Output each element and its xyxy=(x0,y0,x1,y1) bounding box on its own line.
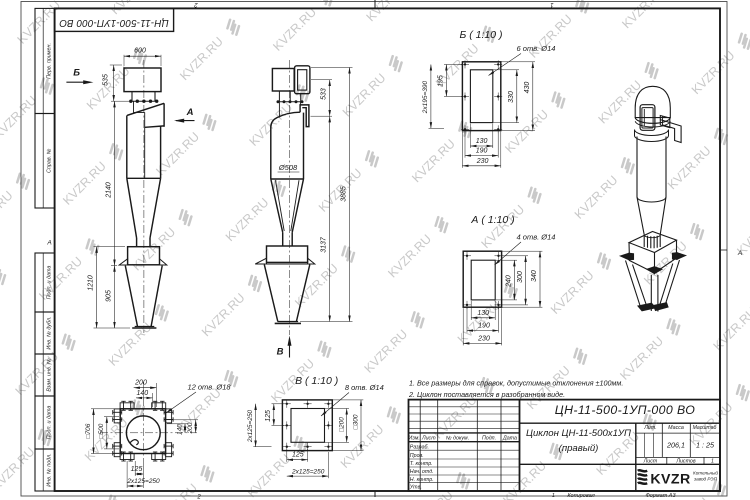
svg-text:230: 230 xyxy=(477,335,490,342)
svg-text:В: В xyxy=(277,347,284,358)
svg-text:3885: 3885 xyxy=(340,186,347,202)
svg-text:Масса: Масса xyxy=(668,425,684,431)
svg-text:140: 140 xyxy=(136,390,148,397)
svg-text:2х125=250: 2х125=250 xyxy=(247,409,254,443)
svg-text:12 отв. Ø18: 12 отв. Ø18 xyxy=(187,383,231,392)
svg-text:240: 240 xyxy=(506,275,513,288)
svg-text:Листов: Листов xyxy=(675,459,696,465)
svg-text:200: 200 xyxy=(134,380,147,387)
svg-text:125: 125 xyxy=(131,466,143,473)
svg-text:8 отв. Ø14: 8 отв. Ø14 xyxy=(345,383,384,392)
svg-text:Нач. отд.: Нач. отд. xyxy=(410,469,434,475)
svg-text:Т. контр.: Т. контр. xyxy=(410,461,433,467)
svg-text:430: 430 xyxy=(524,82,531,94)
svg-text:Копировал: Копировал xyxy=(567,493,594,499)
svg-text:KVZR: KVZR xyxy=(650,472,690,488)
svg-text:1: 1 xyxy=(552,493,555,499)
svg-text:В ( 1:10 ): В ( 1:10 ) xyxy=(295,375,338,387)
svg-text:□200: □200 xyxy=(338,417,345,432)
svg-text:533: 533 xyxy=(320,88,327,100)
svg-text:Разраб.: Разраб. xyxy=(410,444,429,450)
svg-text:1: 1 xyxy=(711,459,714,465)
svg-text:□300: □300 xyxy=(353,414,360,429)
svg-text:А ( 1:10 ): А ( 1:10 ) xyxy=(470,214,514,226)
svg-text:Пров.: Пров. xyxy=(410,453,424,459)
svg-text:завод РЭП: завод РЭП xyxy=(693,477,718,482)
svg-text:Утв.: Утв. xyxy=(410,485,422,491)
svg-text:535: 535 xyxy=(103,74,110,86)
svg-text:Перв. примен.: Перв. примен. xyxy=(46,43,52,79)
svg-text:190: 190 xyxy=(478,323,490,330)
svg-text:4 отв. Ø14: 4 отв. Ø14 xyxy=(517,233,556,242)
svg-text:Ø508: Ø508 xyxy=(278,163,298,172)
svg-text:№ докум.: № докум. xyxy=(446,435,469,441)
svg-text:Изм.: Изм. xyxy=(409,435,420,441)
svg-text:230: 230 xyxy=(476,158,489,165)
svg-text:125: 125 xyxy=(265,410,272,422)
svg-text:Б: Б xyxy=(73,68,80,79)
svg-text:2х125=250: 2х125=250 xyxy=(291,468,325,475)
svg-text:Формат А3: Формат А3 xyxy=(645,493,676,499)
svg-text:Подп. и дата: Подп. и дата xyxy=(46,266,52,300)
svg-text:6 отв. Ø14: 6 отв. Ø14 xyxy=(517,44,556,53)
svg-text:Лист: Лист xyxy=(643,459,658,465)
svg-text:Справ. №: Справ. № xyxy=(46,148,52,173)
svg-text:600: 600 xyxy=(134,48,146,55)
svg-text:Дата: Дата xyxy=(502,435,517,441)
svg-text:1: 1 xyxy=(550,1,553,7)
svg-text:□706: □706 xyxy=(85,423,92,438)
svg-text:А: А xyxy=(737,250,742,257)
svg-text:2: 2 xyxy=(194,1,199,7)
svg-text:Масштаб: Масштаб xyxy=(693,425,718,431)
svg-text:140: 140 xyxy=(177,424,184,435)
svg-text:330: 330 xyxy=(508,91,515,103)
svg-text:Циклон ЦН-11-500х1УП: Циклон ЦН-11-500х1УП xyxy=(526,428,631,439)
svg-text:ЦН-11-500-1УП-000 ВО: ЦН-11-500-1УП-000 ВО xyxy=(59,17,169,28)
svg-text:3137: 3137 xyxy=(320,236,327,253)
svg-text:Б ( 1:10 ): Б ( 1:10 ) xyxy=(459,29,502,41)
svg-text:ЦН-11-500-1УП-000 ВО: ЦН-11-500-1УП-000 ВО xyxy=(555,403,696,417)
svg-text:2. Циклон поставляется в разоб: 2. Циклон поставляется в разобранном вид… xyxy=(408,390,565,399)
svg-text:А: А xyxy=(186,107,194,118)
svg-text:Инв. № дубл.: Инв. № дубл. xyxy=(46,316,52,349)
svg-text:2х195=390: 2х195=390 xyxy=(422,80,429,114)
svg-text:1 : 25: 1 : 25 xyxy=(696,441,715,450)
svg-text:300: 300 xyxy=(517,271,524,283)
svg-text:Котельный: Котельный xyxy=(693,470,718,476)
svg-text:125: 125 xyxy=(292,452,304,459)
svg-text:2: 2 xyxy=(196,495,201,500)
svg-text:Н. контр.: Н. контр. xyxy=(410,477,434,483)
svg-text:2140: 2140 xyxy=(105,182,112,199)
svg-text:Взам. инв. №: Взам. инв. № xyxy=(46,358,52,392)
svg-text:А: А xyxy=(46,240,51,247)
svg-text:Инв. № подл.: Инв. № подл. xyxy=(46,453,52,486)
svg-text:Лит.: Лит. xyxy=(643,425,656,431)
svg-text:130: 130 xyxy=(477,310,489,317)
svg-text:□500: □500 xyxy=(98,423,105,438)
svg-text:2х125=250: 2х125=250 xyxy=(126,478,160,485)
svg-text:1. Все размеры для справок, до: 1. Все размеры для справок, допустимые о… xyxy=(409,379,623,388)
svg-text:Лист: Лист xyxy=(421,435,436,441)
svg-text:Подп. и дата: Подп. и дата xyxy=(46,406,52,440)
svg-text:(правый): (правый) xyxy=(559,443,599,454)
svg-text:200: 200 xyxy=(187,422,194,434)
svg-text:905: 905 xyxy=(105,290,112,302)
svg-text:Подп.: Подп. xyxy=(482,435,496,441)
svg-text:130: 130 xyxy=(476,138,488,145)
svg-text:206,1: 206,1 xyxy=(666,441,685,450)
svg-text:1210: 1210 xyxy=(87,275,94,291)
svg-text:190: 190 xyxy=(476,148,488,155)
svg-text:195: 195 xyxy=(438,75,445,87)
svg-text:340: 340 xyxy=(531,270,538,282)
